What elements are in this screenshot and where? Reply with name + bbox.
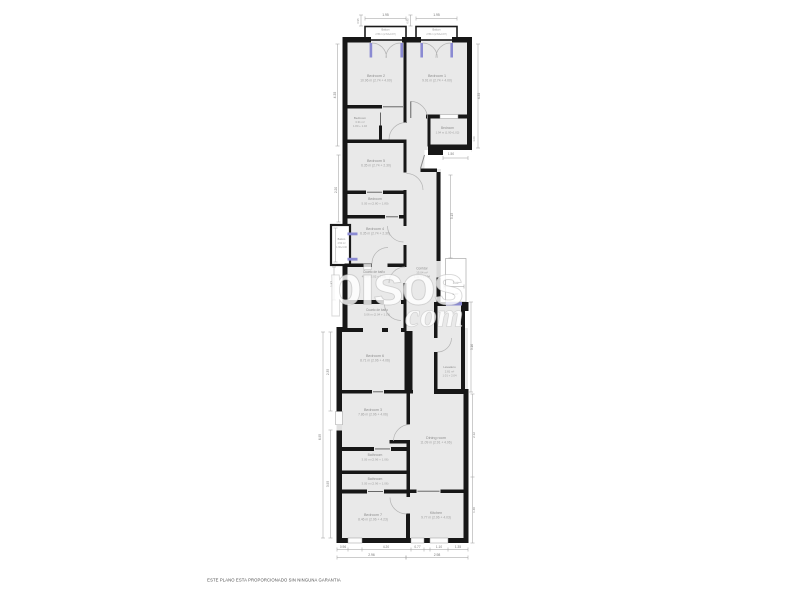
svg-text:3.16: 3.16 [470, 344, 474, 350]
svg-text:8.71 m (2.96 + 4.06): 8.71 m (2.96 + 4.06) [360, 359, 390, 363]
svg-text:11.09 m (2.91 + 4.06): 11.09 m (2.91 + 4.06) [420, 441, 451, 445]
svg-text:1.94 m (1.90+1.02): 1.94 m (1.90+1.02) [436, 131, 460, 135]
svg-text:Dining room: Dining room [426, 436, 446, 440]
svg-text:1.40: 1.40 [472, 507, 476, 513]
svg-text:2.96: 2.96 [368, 553, 375, 557]
svg-text:2.98: 2.98 [434, 553, 441, 557]
svg-text:0.77: 0.77 [414, 545, 420, 549]
svg-text:Bedroom 3: Bedroom 3 [364, 408, 382, 412]
svg-text:Bedroom 1: Bedroom 1 [428, 74, 446, 78]
svg-text:6.35 m (2.74 + 2.30): 6.35 m (2.74 + 2.30) [361, 164, 391, 168]
svg-text:4.50 m²: 4.50 m² [337, 242, 345, 245]
svg-text:Bedroom 2: Bedroom 2 [367, 74, 385, 78]
svg-text:7.86 m (2.96 + 4.06): 7.86 m (2.96 + 4.06) [358, 413, 388, 417]
svg-text:1.30+3.40: 1.30+3.40 [336, 246, 347, 249]
svg-text:Lavadero: Lavadero [443, 365, 456, 369]
svg-text:Kitchen: Kitchen [430, 511, 442, 515]
svg-text:4.35: 4.35 [333, 92, 337, 99]
svg-text:3.95: 3.95 [326, 481, 330, 487]
svg-text:Bedroom: Bedroom [441, 126, 454, 130]
svg-text:5.05 m (2.80 + 1.80): 5.05 m (2.80 + 1.80) [361, 202, 388, 206]
svg-text:4.20: 4.20 [383, 545, 389, 549]
svg-text:5.15: 5.15 [450, 213, 454, 219]
svg-text:1.80 + 1.46: 1.80 + 1.46 [353, 124, 368, 128]
svg-text:Bedroom 4: Bedroom 4 [366, 227, 384, 231]
svg-text:3.05 m (2.96 + 1.06): 3.05 m (2.96 + 1.06) [361, 482, 388, 486]
svg-text:Bedroom 6: Bedroom 6 [366, 354, 384, 358]
svg-text:0.95: 0.95 [356, 18, 360, 24]
svg-text:Bedroom 5: Bedroom 5 [367, 159, 385, 163]
svg-text:4.35: 4.35 [477, 93, 481, 100]
svg-text:9.91 m (2.74 + 4.00): 9.91 m (2.74 + 4.00) [422, 79, 452, 83]
svg-text:1.95: 1.95 [433, 13, 440, 17]
svg-text:2.12: 2.12 [472, 432, 476, 438]
svg-text:Bathroom: Bathroom [368, 477, 383, 481]
svg-text:10.96 m (2.74 + 4.00): 10.96 m (2.74 + 4.00) [360, 79, 392, 83]
svg-text:Bathroom: Bathroom [368, 453, 383, 457]
svg-text:1.95: 1.95 [382, 13, 389, 17]
svg-text:2.20: 2.20 [334, 187, 338, 193]
svg-text:1.50: 1.50 [448, 152, 454, 156]
svg-text:6.95: 6.95 [318, 434, 322, 440]
svg-text:Bedroom 7: Bedroom 7 [364, 513, 382, 517]
svg-text:0.96: 0.96 [340, 545, 346, 549]
svg-text:Bedroom: Bedroom [368, 197, 382, 201]
svg-text:2.35: 2.35 [326, 369, 330, 375]
svg-text:9.77 m (2.96 + 4.03): 9.77 m (2.96 + 4.03) [421, 516, 451, 520]
svg-text:Balcon: Balcon [382, 28, 390, 32]
svg-text:2.55 m (2.63+0.97): 2.55 m (2.63+0.97) [426, 33, 446, 36]
svg-text:1.10: 1.10 [436, 545, 442, 549]
svg-text:1.01 + 2.04: 1.01 + 2.04 [442, 374, 457, 378]
svg-text:8.46 m (2.96 + 4.23): 8.46 m (2.96 + 4.23) [358, 518, 388, 522]
svg-text:com: com [405, 298, 464, 335]
svg-text:0.95: 0.95 [405, 18, 409, 24]
svg-text:2.55 m (2.63+0.97): 2.55 m (2.63+0.97) [375, 33, 395, 36]
svg-text:1.06: 1.06 [472, 136, 476, 142]
svg-text:3.05 m (2.96 + 1.06): 3.05 m (2.96 + 1.06) [361, 458, 388, 462]
svg-text:ESTE PLANO ESTA PROPORCIONADO: ESTE PLANO ESTA PROPORCIONADO SIN NINGUN… [207, 577, 341, 582]
svg-text:Balcon: Balcon [338, 238, 346, 241]
svg-text:1.35: 1.35 [455, 545, 461, 549]
svg-text:6.35 m (2.74 + 2.30): 6.35 m (2.74 + 2.30) [360, 232, 390, 236]
svg-text:Balcon: Balcon [433, 28, 441, 32]
